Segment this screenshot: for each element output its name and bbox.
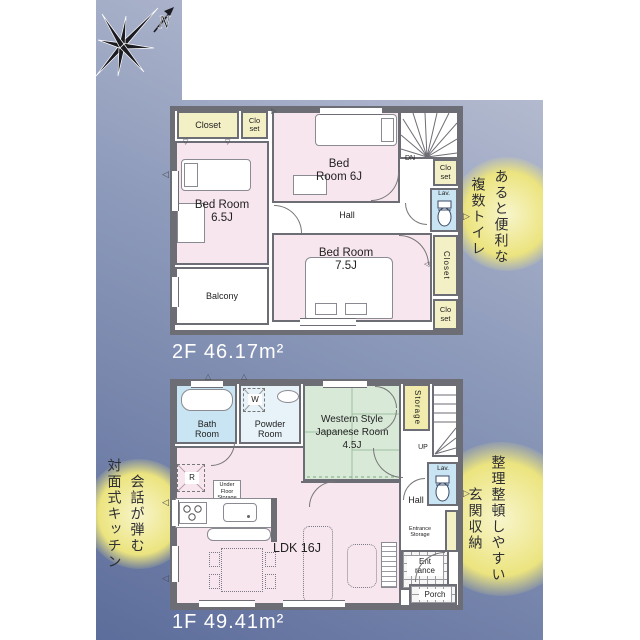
plan-2f: Closet Clo set Balcony Clo set Closet Cl…	[170, 106, 463, 335]
area-label-2f: 2F 46.17m²	[172, 341, 284, 364]
label-porch: Porch	[419, 589, 451, 600]
door-arc	[274, 205, 302, 233]
door-marker: ◁	[162, 498, 169, 507]
area-label-1f: 1F 49.41m²	[172, 611, 284, 634]
stairs-2f-dn-label: DN	[401, 155, 419, 164]
closet-door-marker: ▽	[225, 139, 230, 146]
dining-table	[221, 548, 263, 592]
callout-2f-multiple-toilets: あると便利な 複数トイレ	[466, 156, 514, 278]
door-arc	[403, 478, 425, 500]
window	[171, 171, 179, 211]
fridge-space: R	[177, 464, 205, 492]
dining-chair	[265, 574, 276, 589]
bed-65-pillow	[184, 163, 198, 187]
door-marker: ▷	[271, 108, 276, 115]
window	[300, 318, 356, 326]
label-entrance-storage: Entrance Storage	[399, 524, 441, 540]
dining-chair	[209, 574, 220, 589]
toilet-icon-2f	[436, 200, 453, 228]
bed-75-pillow-left	[315, 303, 337, 315]
callout-line: 会話が弾む	[128, 474, 148, 554]
tv-board	[381, 542, 397, 588]
window	[320, 107, 382, 115]
washing-machine-icon: W	[243, 388, 265, 412]
window	[199, 600, 255, 608]
label-bedroom-6: Bed Room 6J	[313, 149, 365, 193]
stairs-2f-treads	[401, 113, 457, 157]
bed-75-pillow-right	[345, 303, 367, 315]
stove-icon	[179, 502, 207, 524]
window	[323, 380, 367, 388]
vent-marker: △	[241, 373, 247, 381]
window	[283, 600, 345, 608]
callout-line: 複数トイレ	[469, 177, 489, 257]
stairs-1f-treads	[434, 386, 456, 455]
floorplan-flyer: N Closet Clo set Balcony Clo set Closet …	[0, 0, 640, 640]
callout-line: 玄関収納	[466, 487, 486, 551]
callout-line: 整理整頓しやすい	[489, 455, 509, 583]
sink-icon	[277, 390, 299, 403]
closet-door-marker: ▽	[183, 139, 188, 146]
closet-door-marker: ◁	[424, 261, 429, 268]
label-bedroom-65: Bed Room 6.5J	[193, 191, 251, 233]
room-2f-closet-right-mid: Closet	[433, 235, 458, 296]
counter-ledge	[207, 528, 271, 541]
window	[191, 380, 223, 388]
sink-drain	[247, 515, 250, 518]
door-arc	[405, 203, 427, 225]
stairs-2f	[399, 111, 459, 159]
toilet-icon-1f	[434, 475, 451, 503]
lav-2f-label: Lav.	[432, 190, 456, 198]
room-2f-balcony: Balcony	[175, 267, 269, 325]
label-bath: Bath Room	[185, 416, 229, 442]
room-2f-closet-top: Closet	[177, 111, 239, 139]
label-bedroom-75: Bed Room 7.5J	[313, 237, 379, 283]
plan-1f: Storage UP Bath Room W Powder Room	[170, 379, 463, 610]
label-ldk: LDK 16J	[265, 530, 329, 566]
bathtub-icon	[181, 389, 233, 411]
room-1f-storage: Storage	[403, 384, 430, 431]
compass-north-icon: N	[96, 2, 188, 84]
window	[171, 546, 179, 582]
vent-marker: △	[205, 373, 211, 381]
label-powder: Powder Room	[243, 416, 297, 442]
stairs-1f-up-label: UP	[415, 444, 431, 453]
washer-label: W	[248, 394, 262, 405]
label-hall-2f: Hall	[325, 207, 369, 223]
lav-1f-label: Lav.	[431, 465, 455, 473]
compass-north-label: N	[157, 12, 171, 32]
callout-line: あると便利な	[492, 169, 512, 265]
window	[171, 500, 179, 526]
room-1f-entrance-storage-box	[445, 510, 458, 552]
callout-1f-entrance-storage: 整理整頓しやすい 玄関収納	[464, 446, 510, 592]
window	[171, 277, 179, 307]
room-2f-closet-right-top: Clo set	[433, 159, 458, 186]
bed-6-pillow	[381, 118, 394, 142]
kitchen-sink	[223, 503, 257, 522]
background-white-notch	[182, 0, 543, 100]
room-2f-closet-top-small: Clo set	[241, 111, 268, 139]
door-marker: ◁	[162, 574, 169, 583]
callout-line: 対面式キッチン	[105, 458, 125, 570]
stairs-1f	[432, 384, 458, 457]
door-marker: ◁	[162, 170, 169, 179]
dining-chair	[209, 552, 220, 567]
coffee-table	[347, 544, 377, 588]
fridge-label: R	[185, 472, 199, 484]
room-2f-closet-right-bottom: Clo set	[433, 299, 458, 330]
callout-1f-kitchen: 会話が弾む 対面式キッチン	[102, 452, 150, 576]
